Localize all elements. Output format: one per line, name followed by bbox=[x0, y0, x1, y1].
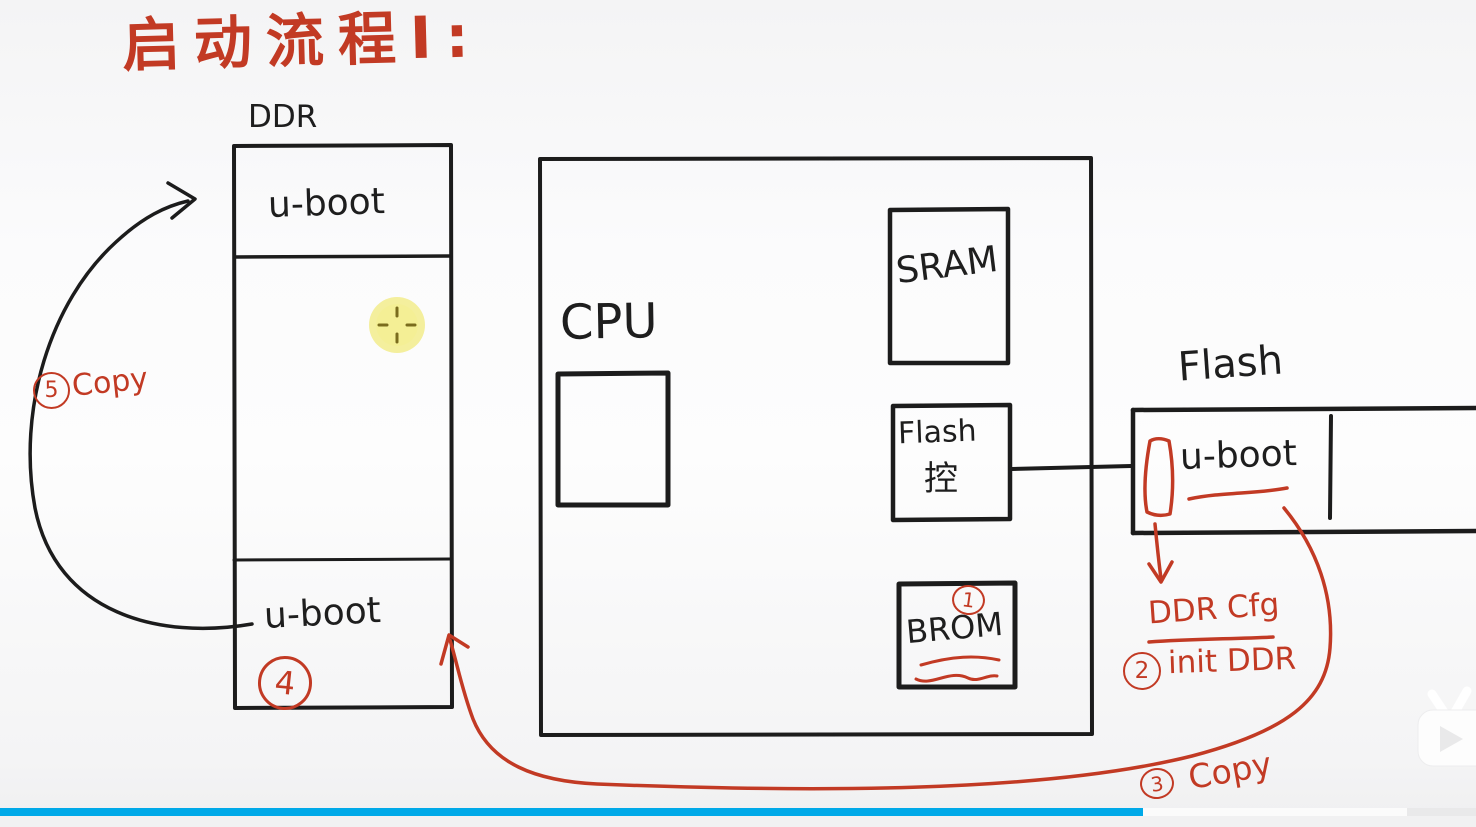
flash-label: Flash bbox=[1177, 340, 1284, 387]
diagram-strokes bbox=[0, 0, 1476, 827]
step2-ddr-cfg-label: DDR Cfg bbox=[1147, 589, 1280, 629]
brom-scribble bbox=[916, 657, 999, 681]
cpu-box bbox=[558, 373, 668, 505]
flash-uboot-label: u-boot bbox=[1179, 436, 1297, 476]
flash-box-top bbox=[1133, 408, 1476, 410]
bus-line bbox=[1012, 466, 1131, 469]
flash-box-divider bbox=[1330, 416, 1331, 518]
step2-badge: 2 bbox=[1123, 652, 1161, 690]
ddr-label: DDR bbox=[248, 102, 317, 133]
tv-play-icon bbox=[1418, 691, 1476, 766]
ddr-uboot-top-label: u-boot bbox=[267, 184, 385, 224]
flash-controller-label-line2: 控 bbox=[924, 462, 958, 496]
ddr-divider-top bbox=[235, 256, 450, 257]
cursor-highlight bbox=[369, 297, 425, 353]
step2-init-ddr-label: init DDR bbox=[1167, 644, 1296, 679]
flash-box-bottom bbox=[1133, 531, 1476, 533]
player-controls-strip bbox=[0, 816, 1476, 827]
brom-label: BROM bbox=[905, 608, 1004, 648]
whiteboard-canvas: 启动流程Ⅰ: DDR u-boot u-boot CPU SRAM Flash … bbox=[0, 0, 1476, 827]
copy5-arrow bbox=[30, 183, 252, 628]
video-progress-fill bbox=[0, 808, 1143, 816]
flash-uboot-underline bbox=[1189, 488, 1287, 499]
step5-copy-label: Copy bbox=[71, 364, 150, 402]
flash-uboot-highlight bbox=[1145, 439, 1173, 516]
cpu-label: CPU bbox=[560, 297, 658, 347]
ddr-divider-bottom bbox=[234, 559, 451, 560]
ddr-uboot-bottom-label: u-boot bbox=[263, 593, 382, 635]
flash-controller-label-line1: Flash bbox=[898, 417, 978, 450]
page-title: 启动流程Ⅰ: bbox=[121, 7, 483, 74]
step5-badge: 5 bbox=[33, 372, 70, 409]
